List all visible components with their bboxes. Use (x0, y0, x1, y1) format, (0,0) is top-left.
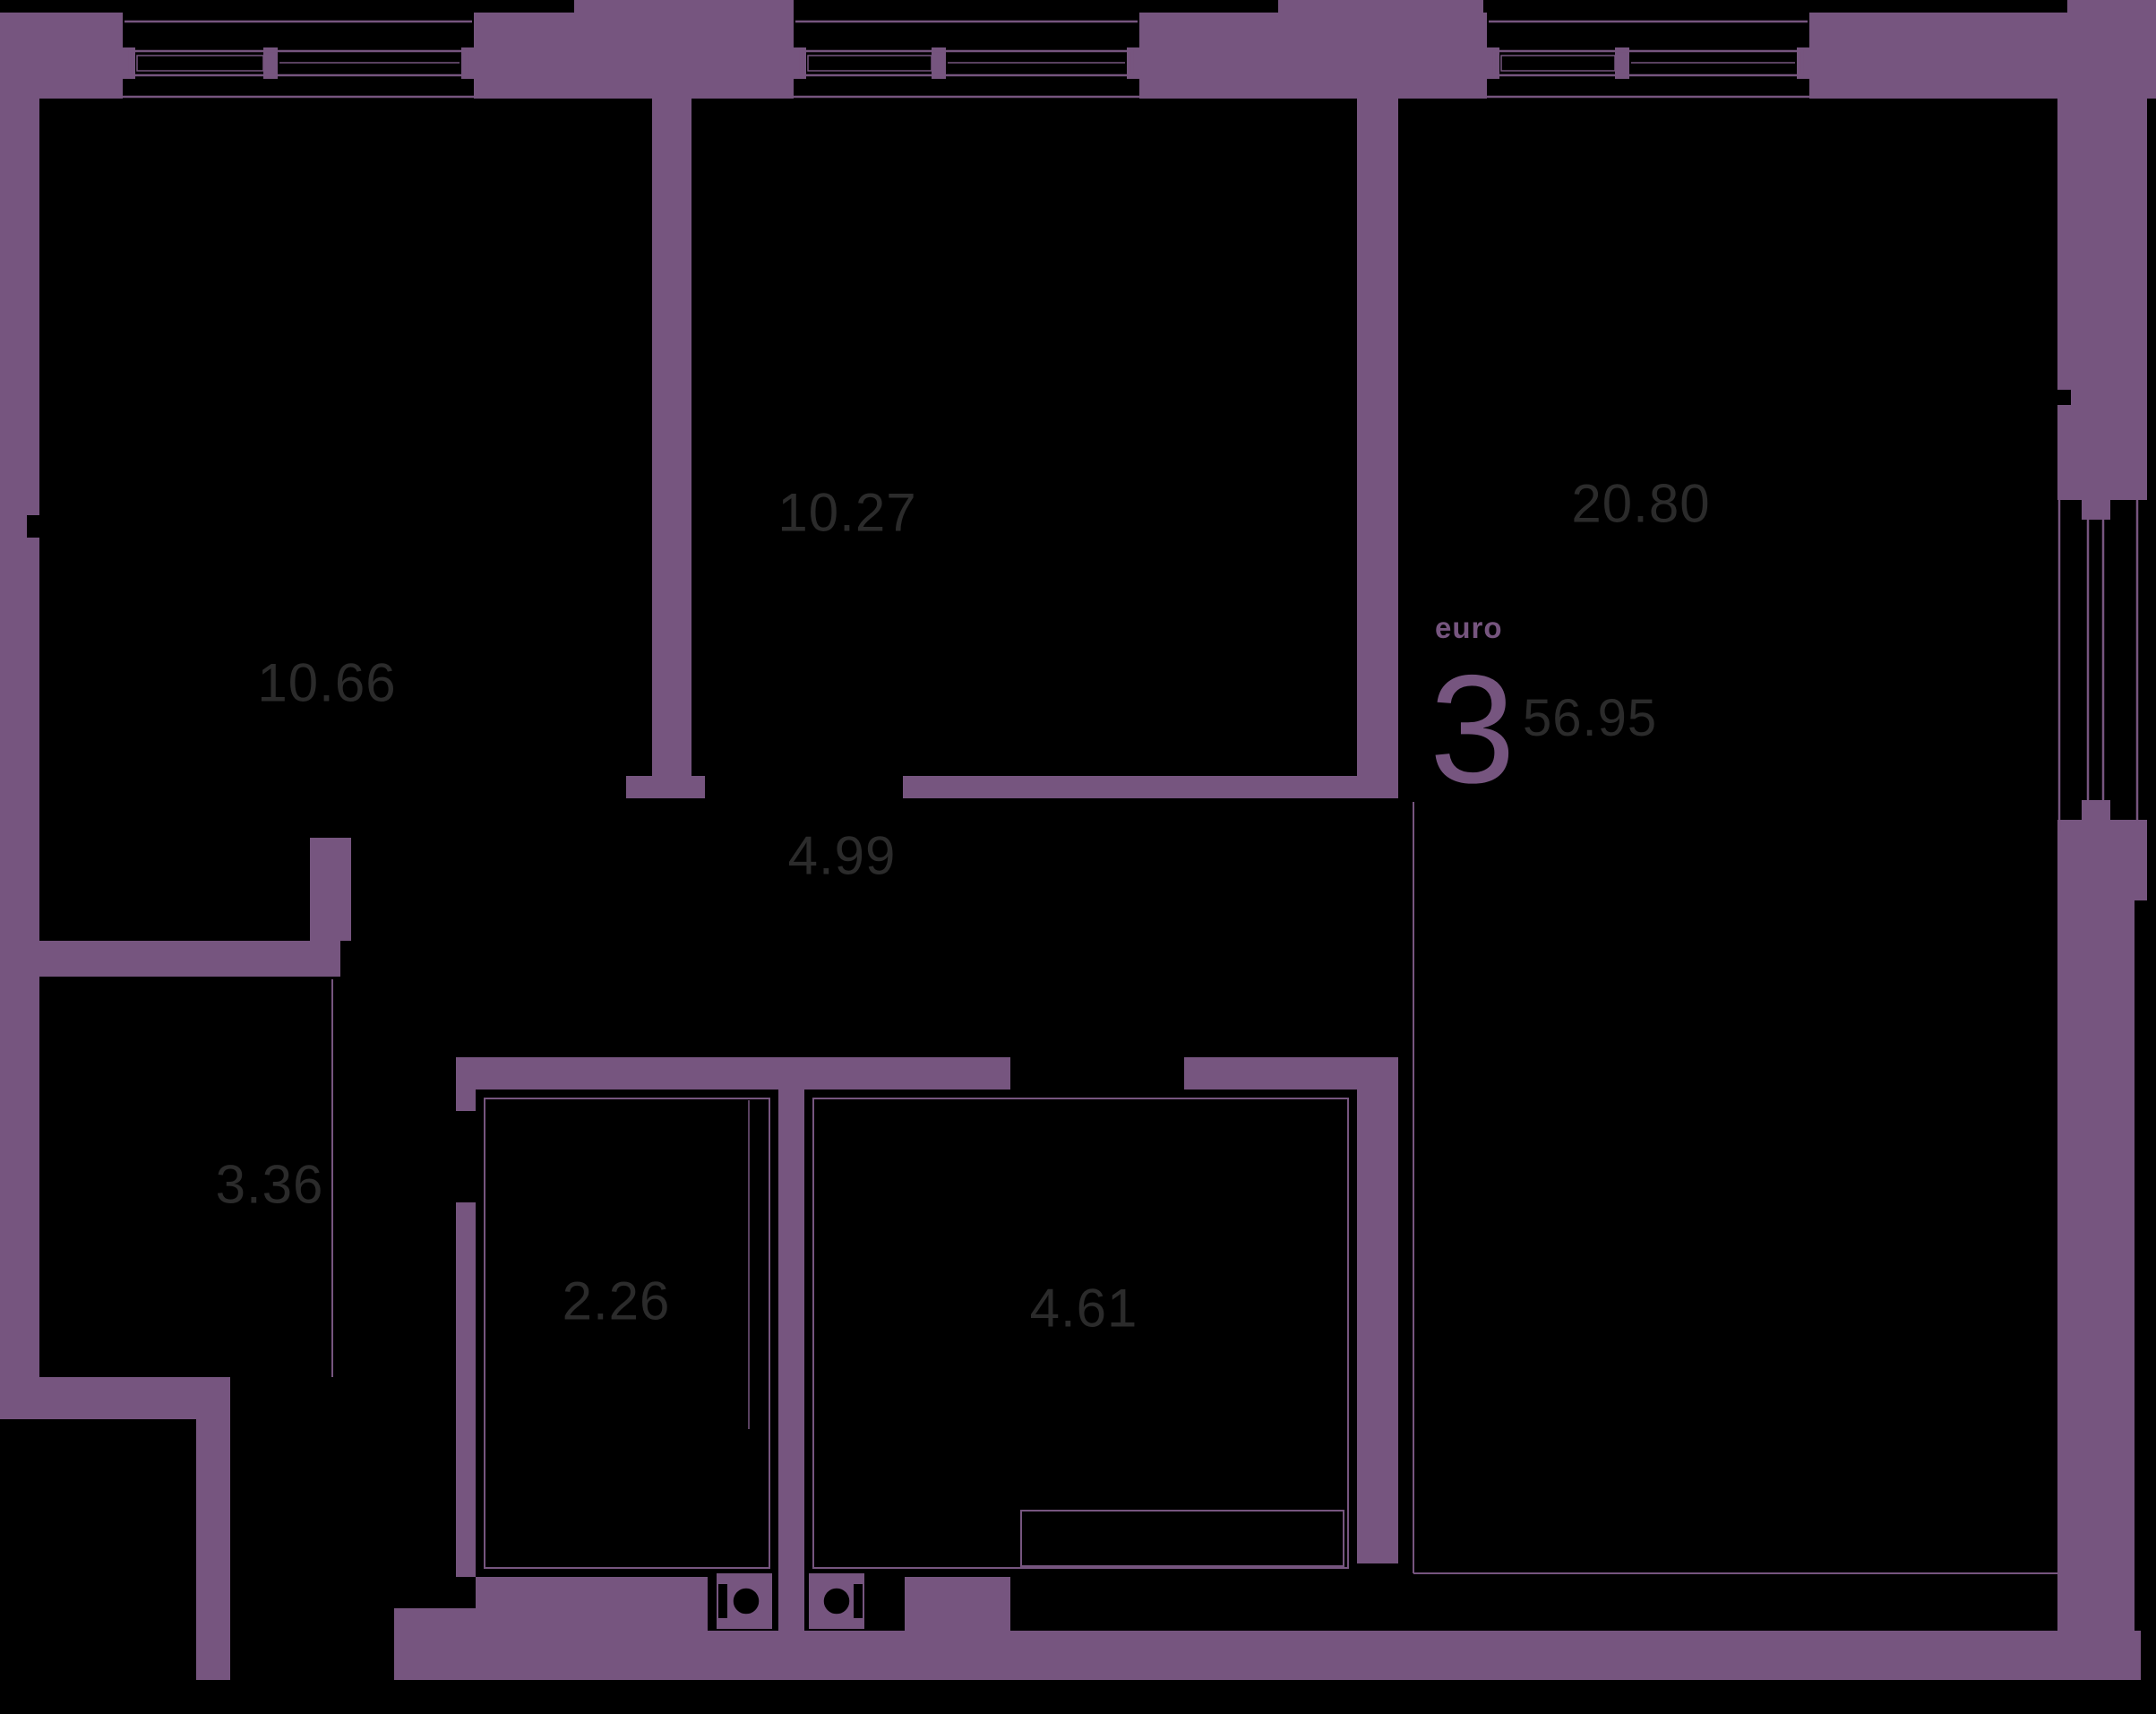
wall-wet-strip-left (476, 1577, 708, 1631)
window3-casement (1501, 56, 1615, 71)
thin-linework (123, 22, 2137, 1615)
wall-wet-strip-right (905, 1577, 1010, 1631)
wall-top-pier-4-parapet (2067, 0, 2156, 14)
wall-bath-right (1357, 1057, 1398, 1563)
window2-casement (808, 56, 932, 71)
wall-hall-step-vertical (196, 1419, 230, 1680)
washer-door-bar (718, 1584, 727, 1618)
floor-plan-drawing (0, 0, 2156, 1714)
wall-wc-left-lower (456, 1202, 476, 1577)
bathtub-outline (1021, 1511, 1344, 1566)
unit-type-label: euro (1435, 611, 1503, 645)
unit-total-area: 56.95 (1523, 688, 1657, 748)
room-area-label-bathroom: 4.61 (1030, 1278, 1138, 1339)
wall-right-mid (2057, 820, 2147, 900)
bedroom2-door-jamb-right (903, 776, 908, 798)
floor-plan-canvas: 10.66 10.27 20.80 4.99 3.36 2.26 4.61 eu… (0, 0, 2156, 1714)
bedroom2-door-jamb-left (700, 776, 705, 798)
wall-bottom (394, 1631, 2141, 1680)
room-area-label-wc: 2.26 (563, 1270, 671, 1332)
left-wall-notch (27, 515, 39, 538)
walls (0, 0, 2156, 1680)
wall-wc-bath-divider (778, 1090, 804, 1631)
unit-rooms-number: 3 (1430, 652, 1516, 806)
room-area-label-bedroom-1: 10.66 (257, 652, 396, 714)
wall-hall-step-horizontal (0, 1377, 230, 1419)
window1-casement (137, 56, 263, 71)
wall-left (0, 99, 39, 1419)
wall-notches (27, 390, 2071, 1618)
wall-top-pier-3 (1139, 13, 1487, 99)
wall-bath-top-left (456, 1057, 1010, 1090)
dryer-door-bar (854, 1584, 863, 1618)
wall-right-upper (2057, 99, 2147, 500)
room-area-label-bedroom-2: 10.27 (777, 482, 916, 544)
wall-bedroom1-bedroom2 (652, 99, 691, 776)
wall-bath-top-right (1184, 1057, 1357, 1090)
room-area-label-hallway: 3.36 (216, 1154, 324, 1216)
wall-top-pier-2-parapet (574, 0, 794, 14)
wall-top-pier-4 (1809, 13, 2156, 99)
wall-bedroom2-bottom-right (903, 776, 1398, 798)
wall-bedroom2-bottom-left-foot (626, 776, 705, 798)
wall-top-pier-1 (0, 13, 123, 99)
wall-top-pier-2 (474, 13, 794, 99)
wall-bedroom1-stub (310, 838, 351, 941)
right-window-cap-bottom (2082, 800, 2110, 820)
wall-bedroom2-living (1357, 99, 1398, 798)
right-wall-notch (2057, 390, 2071, 405)
wall-wc-left-upper (456, 1090, 476, 1111)
room-area-label-corridor: 4.99 (788, 825, 897, 887)
right-window-cap-top (2082, 500, 2110, 520)
wall-right-lower (2057, 900, 2135, 1631)
room-area-label-living-kitchen: 20.80 (1571, 473, 1710, 535)
wall-bedroom1-bottom (39, 941, 340, 977)
wall-top-pier-3-parapet (1278, 0, 1483, 14)
wc-floor-outline (485, 1098, 769, 1568)
